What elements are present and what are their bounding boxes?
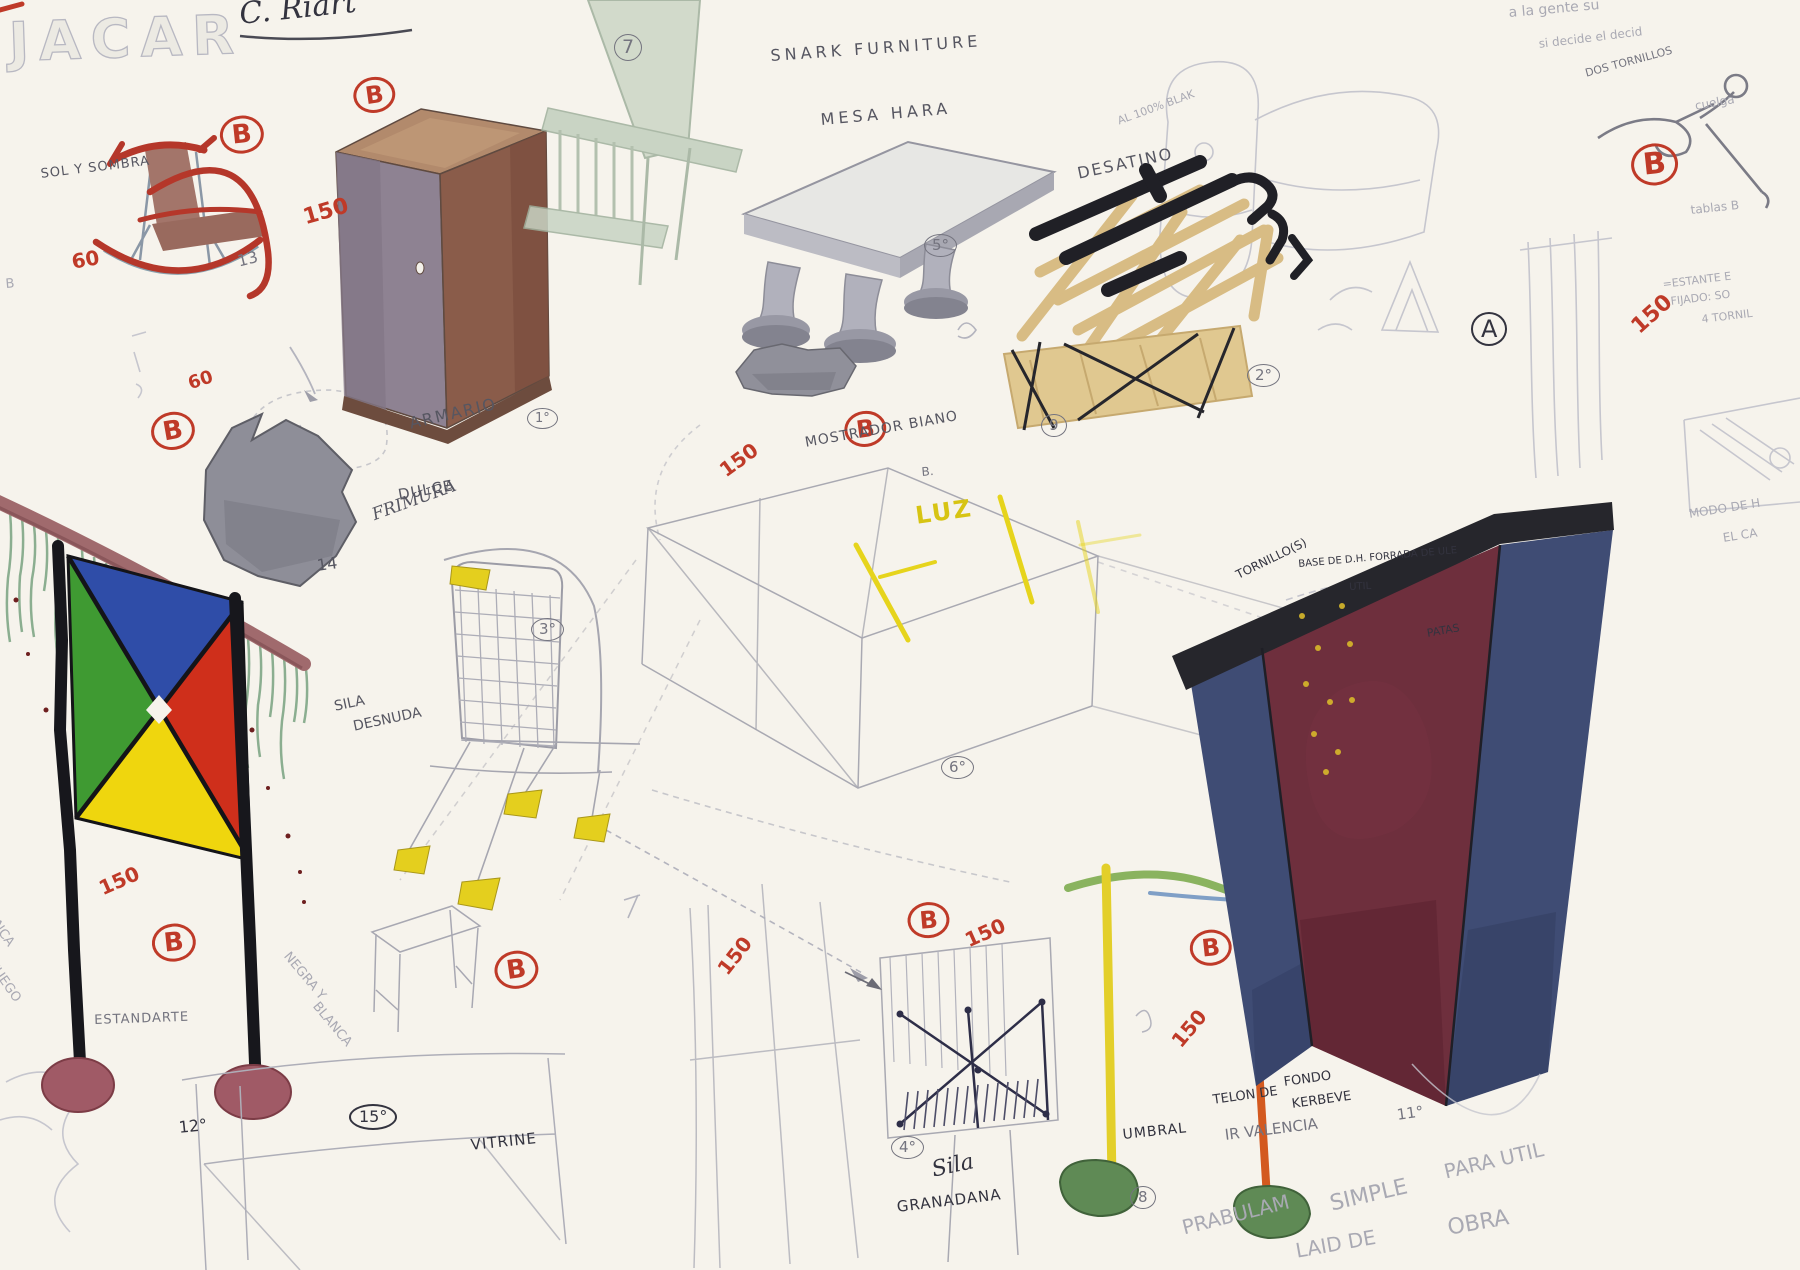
label-desatino: DESATINO bbox=[1076, 146, 1175, 182]
note-util: UTIL bbox=[1349, 582, 1371, 593]
label-sol-y-sombra: SOL Y SOMBRA bbox=[40, 155, 151, 181]
note-blanca-2: BLANCA bbox=[0, 898, 16, 949]
dim-150-banner: 150 bbox=[96, 863, 142, 898]
mark-15-circled: 15° bbox=[349, 1104, 397, 1130]
dim-11: 11° bbox=[1396, 1104, 1424, 1123]
mark-7-circled: 7 bbox=[614, 34, 642, 61]
dim-150-umbral: 150 bbox=[1168, 1006, 1210, 1051]
artist-signature: C. Riart bbox=[238, 0, 358, 30]
note-negra-y: NEGRA Y bbox=[281, 950, 328, 1002]
mark-b-rock: B bbox=[148, 408, 198, 453]
label-snark-furniture: SNARK FURNITURE bbox=[770, 33, 982, 64]
scrawl-para-util: PARA UTIL bbox=[1442, 1139, 1545, 1181]
label-sila: SILA bbox=[333, 694, 366, 714]
dim-60-rock: 60 bbox=[186, 368, 215, 393]
label-sila-granadana-1: Sila bbox=[930, 1151, 976, 1181]
dim-12: 12° bbox=[178, 1117, 208, 1136]
note-y-fuego: Y FUEGO bbox=[0, 950, 23, 1005]
label-mostrador-b: B. bbox=[921, 465, 934, 478]
dim-13: 13 bbox=[236, 249, 260, 269]
note-al-100-blak: AL 100% BLAK bbox=[1116, 88, 1196, 126]
note-estante: =ESTANTE E bbox=[1662, 271, 1732, 290]
note-patas: PATAS bbox=[1426, 622, 1460, 639]
mark-2-circled: 2° bbox=[1247, 364, 1280, 387]
label-mesa-hara: MESA HARA bbox=[820, 101, 952, 128]
mark-b-gate: B bbox=[906, 900, 951, 940]
watermark: JACAR bbox=[8, 8, 245, 70]
dim-60-rocking-chair: 60 bbox=[70, 247, 101, 272]
mark-4-circled: 4° bbox=[891, 1136, 924, 1159]
note-base: BASE DE D.H. FORRADA DE ULE bbox=[1298, 546, 1458, 570]
scrawl-obra: OBRA bbox=[1446, 1207, 1511, 1239]
mark-9-circled: 9 bbox=[1041, 414, 1067, 437]
dim-150-vitrine: 150 bbox=[714, 933, 755, 978]
scrawl-simple: SIMPLE bbox=[1328, 1176, 1410, 1215]
label-vitrine: VITRINE bbox=[470, 1131, 538, 1153]
note-decide: si decide el decid bbox=[1538, 25, 1643, 50]
mark-5-circled: 5° bbox=[924, 234, 957, 257]
label-telon-3: KERBEVE bbox=[1291, 1090, 1352, 1111]
mark-b-vitrine: B bbox=[492, 948, 541, 992]
mark-b-rocking-chair: B bbox=[218, 113, 266, 155]
mark-b-small: B bbox=[5, 277, 15, 291]
mark-b-top-right: B bbox=[1629, 141, 1680, 188]
mark-b-cabinet: B bbox=[351, 74, 398, 116]
label-telon-2: FONDO bbox=[1283, 1069, 1332, 1089]
mark-b-umbral: B bbox=[1188, 928, 1234, 968]
dim-14: 14 bbox=[316, 555, 338, 574]
mark-6-circled: 6° bbox=[941, 756, 974, 779]
note-blanca: BLANCA bbox=[310, 1000, 354, 1049]
label-sila-granadana-2: GRANADANA bbox=[896, 1187, 1002, 1215]
label-luz: LUZ bbox=[914, 496, 974, 528]
mark-8-circled: 8 bbox=[1130, 1186, 1156, 1209]
label-telon-1: TELON DE bbox=[1212, 1085, 1278, 1107]
sketchbook-page: JACARC. Riart7SNARK FURNITUREMESA HARABS… bbox=[0, 0, 1800, 1270]
mark-3-circled: 3° bbox=[531, 618, 564, 641]
label-estandarte: ESTANDARTE bbox=[94, 1011, 189, 1027]
dim-150-gate: 150 bbox=[962, 915, 1008, 950]
mark-1-circled: 1° bbox=[527, 408, 558, 429]
label-mostrador: MOSTRADOR BIANO bbox=[804, 409, 959, 450]
note-el-ca: EL CA bbox=[1722, 527, 1758, 544]
dim-150-counter: 150 bbox=[716, 439, 762, 480]
label-desnuda: DESNUDA bbox=[352, 706, 423, 734]
label-armario: ARMARIO bbox=[408, 396, 499, 432]
mark-b-banner: B bbox=[150, 921, 198, 963]
scrawl-laid-de: LAID DE bbox=[1294, 1227, 1377, 1261]
note-tablas: tablas B bbox=[1690, 199, 1740, 216]
dim-150-cabinet: 150 bbox=[301, 195, 351, 229]
note-gente: a la gente su bbox=[1508, 0, 1600, 20]
note-dos-tornillos: DOS TORNILLOS bbox=[1584, 45, 1673, 79]
label-ir-valencia: IR VALENCIA bbox=[1224, 1117, 1319, 1143]
note-modo-de: MODO DE H bbox=[1688, 497, 1761, 520]
note-4-tornillos: 4 TORNIL bbox=[1701, 308, 1753, 325]
label-umbral: UMBRAL bbox=[1122, 1121, 1188, 1142]
note-fijado: FIJADO: SO bbox=[1670, 289, 1731, 307]
note-cuelga: cuelga bbox=[1694, 93, 1735, 112]
annotations-layer: JACARC. Riart7SNARK FURNITUREMESA HARABS… bbox=[0, 0, 1800, 1270]
scrawl-prabulam: PRABULAM bbox=[1180, 1191, 1291, 1237]
mark-a-circled: A bbox=[1471, 312, 1507, 346]
